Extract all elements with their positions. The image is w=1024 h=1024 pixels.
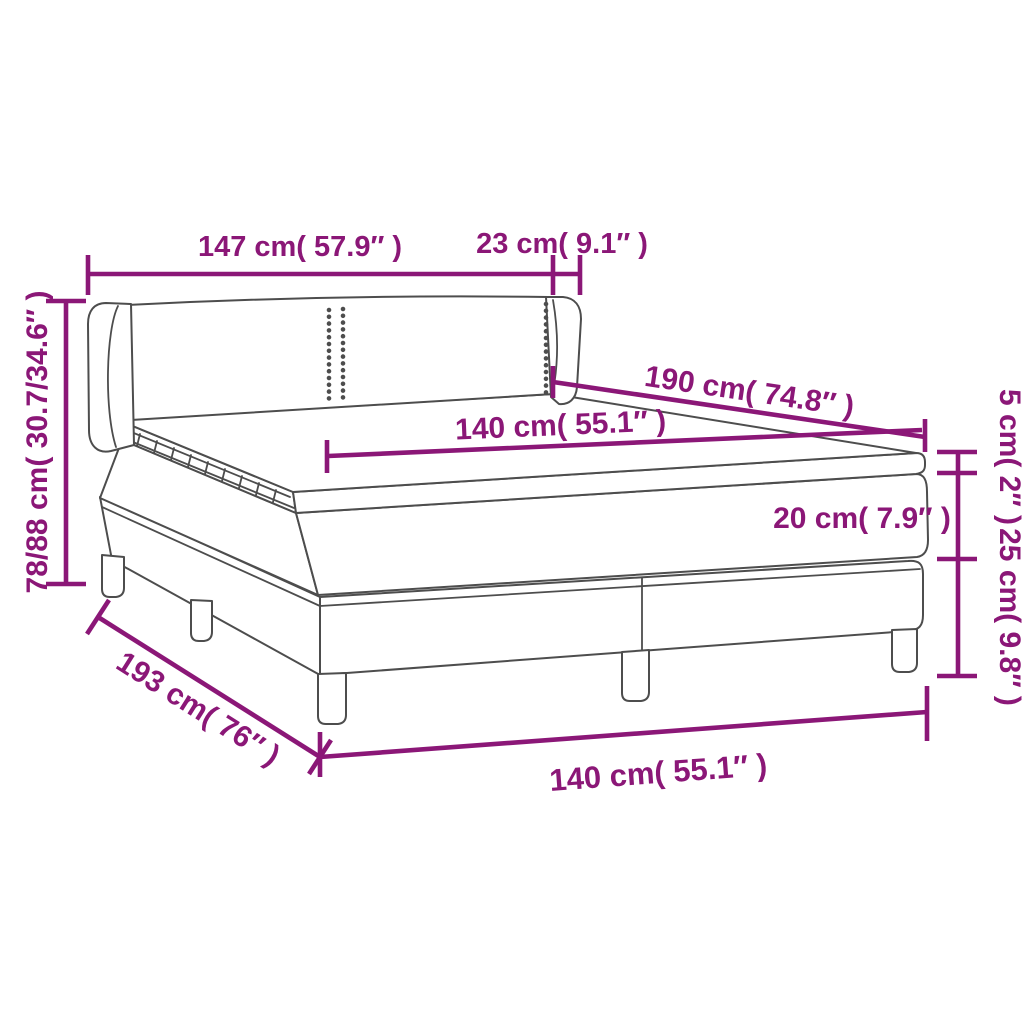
dim-wing-depth-label: 23 cm( 9.1″ ) [476, 228, 648, 260]
bed-leg [191, 600, 212, 641]
dimension-diagram: 147 cm( 57.9″ ) 23 cm( 9.1″ ) 78/88 cm( … [0, 0, 1024, 1024]
dim-right-heights-line [937, 452, 977, 677]
bed-leg [892, 629, 917, 672]
dim-total-height-label: 78/88 cm( 30.7/34.6″ ) [21, 291, 54, 594]
dim-base-height-label: 25 cm( 9.8″ ) [993, 528, 1024, 706]
dim-base-width-label: 140 cm( 55.1″ ) [548, 747, 768, 798]
dim-topper-height-label: 5 cm( 2″ ) [993, 389, 1024, 525]
bed-leg [318, 673, 346, 724]
dim-total-length-label: 193 cm( 76″ ) [111, 645, 286, 772]
dim-wing-depth-line [553, 255, 580, 295]
dim-mattress-height-label: 20 cm( 7.9″ ) [773, 502, 951, 535]
bed-leg [622, 650, 649, 701]
dim-headboard-width-label: 147 cm( 57.9″ ) [198, 231, 402, 263]
bed-leg [102, 555, 124, 597]
